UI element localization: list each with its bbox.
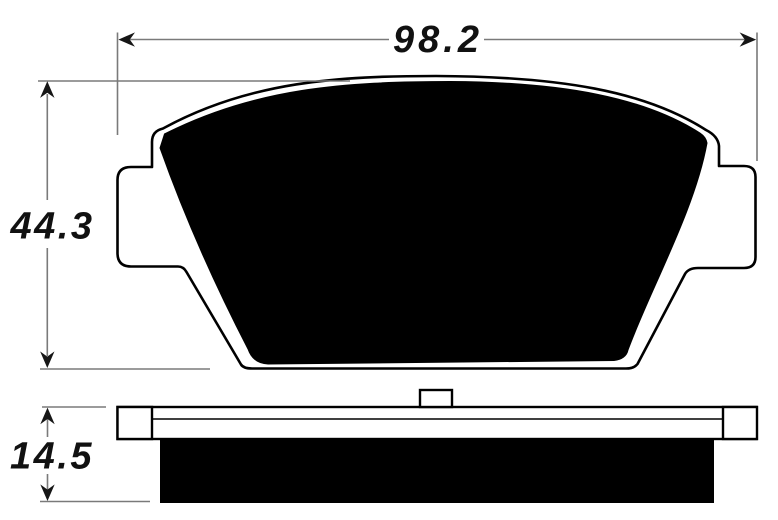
svg-text:98.2: 98.2: [393, 19, 483, 61]
svg-text:14.5: 14.5: [10, 436, 94, 478]
svg-text:44.3: 44.3: [10, 206, 95, 248]
